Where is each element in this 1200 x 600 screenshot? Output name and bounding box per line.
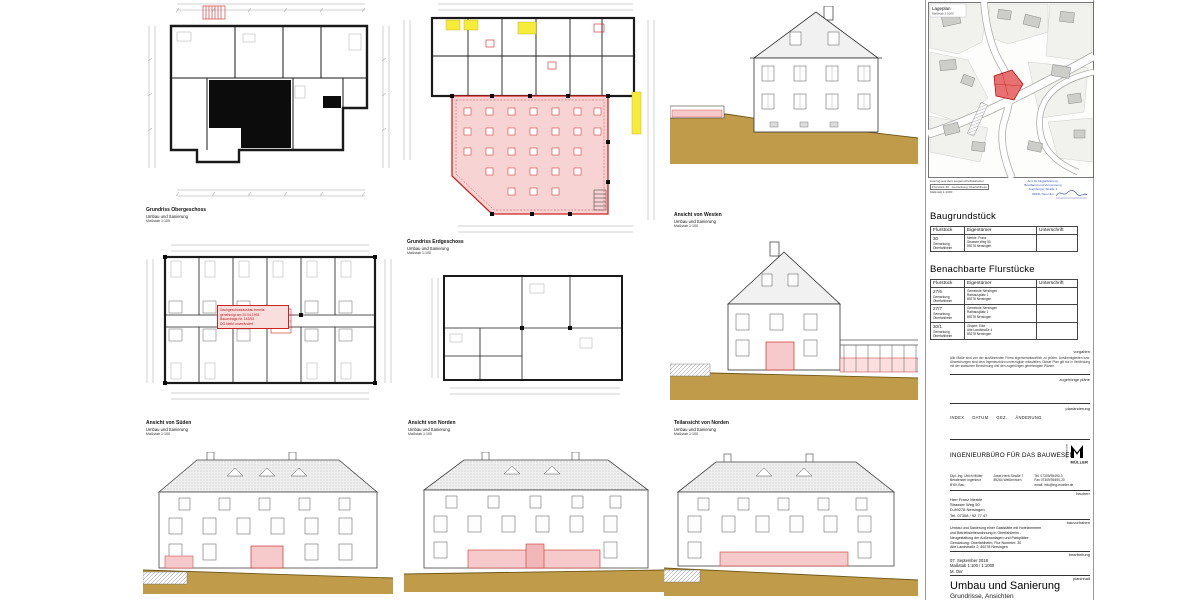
map-footnotes: Auszug aus dem Liegenschaftskataster Flu… xyxy=(930,179,1012,195)
plan-title: Umbau und Sanierung xyxy=(950,580,1060,592)
logo-text: MÜLLER xyxy=(1071,460,1089,465)
section-label-plaene: zugehörige pläne xyxy=(1059,377,1090,382)
firm-name: INGENIEURBÜRO FÜR DAS BAUWESEN xyxy=(950,452,1074,459)
annex-pink-strip xyxy=(672,110,722,117)
caption-scale: Maßstab 1:100 xyxy=(146,219,206,224)
sheet-divider-line xyxy=(925,0,926,600)
benachbarte-table: Flurstück Eigentümer Unterschrift 27/6 G… xyxy=(930,279,1078,340)
caption-title: Ansicht von Süden xyxy=(146,420,191,427)
title-block-panel: Lageplan Maßstab 1:1000 Auszug aus dem L… xyxy=(928,0,1094,600)
caption-title: Ansicht von Westen xyxy=(674,212,722,219)
caption-obergeschoss: Grundriss Obergeschoss Umbau und Sanieru… xyxy=(146,207,206,224)
chimney xyxy=(824,6,833,20)
divider xyxy=(950,374,1090,375)
divider xyxy=(950,575,1090,576)
stair-red-marking xyxy=(203,6,225,19)
caption-scale: Maßstab 1:100 xyxy=(408,432,456,437)
new-entrance-pink xyxy=(766,342,794,370)
caption-title: Grundriss Obergeschoss xyxy=(146,207,206,214)
eigentuemer-cell: Gemeinde Nersingen Rathausplatz 1 89278 … xyxy=(965,305,1037,322)
index-row: INDEX DATUM GEZ. ÄNDERUNG xyxy=(950,415,1042,420)
flurstueck-cell: 27/6 Gemarkung Oberfahlheim xyxy=(931,288,965,305)
bauvorhaben-text: Umbau und Sanierung einer Gaststätte mit… xyxy=(950,526,1090,550)
table-header-row: Flurstück Eigentümer Unterschrift xyxy=(931,227,1078,235)
elevation-sued-drawing xyxy=(143,452,393,600)
retaining-wall-hatch xyxy=(143,572,187,584)
approval-note-box: Dachgeschossausbau bereits genehmigt am … xyxy=(217,305,289,329)
index-col: ÄNDERUNG xyxy=(1015,415,1041,420)
table-row: 27/7 Gemarkung Oberfahlheim Gemeinde Ner… xyxy=(931,305,1078,322)
contact-col: Dipl.-Ing. Ulrich Müller Beratender Inge… xyxy=(950,474,982,487)
ground xyxy=(664,568,918,596)
roof xyxy=(678,462,894,492)
signature-cell xyxy=(1037,322,1078,339)
caption-scale: Maßstab 1:100 xyxy=(146,432,191,437)
benachbarte-heading: Benachbarte Flurstücke xyxy=(930,264,1035,275)
index-col: DATUM xyxy=(972,415,988,420)
elevation-teil-nord-drawing xyxy=(664,452,918,600)
ground xyxy=(670,372,918,400)
vorgaben-text: Alle Maße sind von der ausführenden Firm… xyxy=(950,356,1090,368)
flurstueck-cell: 27/7 Gemarkung Oberfahlheim xyxy=(931,305,965,322)
roof-gable xyxy=(754,12,878,58)
caption-erdgeschoss: Grundriss Erdgeschoss Umbau und Sanierun… xyxy=(407,239,464,256)
flurstueck-cell: 30 Gemarkung Oberfahlheim xyxy=(931,235,965,252)
caption-title: Ansicht von Norden xyxy=(408,420,456,427)
elevation-west-drawing xyxy=(670,6,918,166)
terrace xyxy=(840,340,918,372)
section-label-bauherr: bauherr xyxy=(1076,491,1090,496)
bearbeitung-block: 07. September 2018 Maßstab 1:100 / 1:100… xyxy=(950,558,994,574)
contact-col: Tel. 07309/95490-0 Fax 07309/95490-20 em… xyxy=(1034,474,1073,487)
map-footnote: Maßstab 1:1000 xyxy=(930,190,1012,195)
chimney xyxy=(770,242,779,256)
flurstueck-cell: 30/1 Gemarkung Oberfahlheim xyxy=(931,322,965,339)
map-footnote-boxed: Flurstück 30 · Gemarkung Oberfahlheim xyxy=(930,184,989,191)
col-unterschrift: Unterschrift xyxy=(1037,227,1078,235)
caption-title: Grundriss Erdgeschoss xyxy=(407,239,464,246)
eigentuemer-cell: Merkle, Franz Strasser Weg 50 89278 Ners… xyxy=(965,235,1037,252)
elevation-nord-drawing xyxy=(404,452,664,600)
divider xyxy=(950,403,1090,404)
index-col: INDEX xyxy=(950,415,964,420)
col-flurstueck: Flurstück xyxy=(931,227,965,235)
firm-contact: Dipl.-Ing. Ulrich Müller Beratender Inge… xyxy=(950,474,1073,487)
roof-gable xyxy=(728,252,840,304)
col-eigentuemer: Eigentümer xyxy=(965,280,1037,288)
caption-title: Teilansicht von Norden xyxy=(674,420,729,427)
retaining-wall-hatch xyxy=(670,364,710,376)
section-label-bauvorhaben: bauvorhaben xyxy=(1067,520,1090,525)
floorplan-keller-drawing xyxy=(430,268,632,398)
note-line: DG bleibt unverändert xyxy=(220,322,286,327)
index-col: GEZ. xyxy=(996,415,1007,420)
divider xyxy=(950,439,1090,440)
caption-ansicht-sueden: Ansicht von Süden Umbau und Sanierung Ma… xyxy=(146,420,191,437)
section-label-planaenderung: planänderung xyxy=(1066,406,1090,411)
contact-col: Josef-Herb-Straße 7 89264 Weißenhorn xyxy=(993,474,1023,487)
signature-cell xyxy=(1037,235,1078,252)
signature-cell xyxy=(1037,288,1078,305)
caption-scale: Maßstab 1:100 xyxy=(674,432,729,437)
baugrundstueck-table: Flurstück Eigentümer Unterschrift 30 Gem… xyxy=(930,226,1078,252)
col-flurstueck: Flurstück xyxy=(931,280,965,288)
mueller-logo-icon: INGENIEURBÜRO MÜLLER xyxy=(1064,444,1090,466)
section-label-vorgaben: vorgaben xyxy=(1073,349,1090,354)
bauherr-address: Herr Franz Merkle Strasser Weg 50 D-8927… xyxy=(950,497,987,518)
map-title: Lageplan xyxy=(932,6,951,11)
logo-vertical-text: INGENIEURBÜRO xyxy=(1066,444,1069,458)
map-scale: Maßstab 1:1000 xyxy=(932,12,954,16)
pink-strip xyxy=(165,556,193,568)
divider xyxy=(950,490,1090,491)
table-row: 30 Gemarkung Oberfahlheim Merkle, Franz … xyxy=(931,235,1078,252)
floorplan-obergeschoss-drawing xyxy=(143,0,395,205)
caption-teilansicht-norden: Teilansicht von Norden Umbau und Sanieru… xyxy=(674,420,729,437)
table-header-row: Flurstück Eigentümer Unterschrift xyxy=(931,280,1078,288)
mueller-logo: INGENIEURBÜRO MÜLLER xyxy=(1064,444,1090,471)
elevation-section-drawing xyxy=(670,222,918,404)
roof xyxy=(424,460,648,490)
signature-cell xyxy=(1037,305,1078,322)
porch-pink xyxy=(251,546,283,568)
pink-strip-wide xyxy=(720,552,848,566)
table-row: 30/1 Gemarkung Oberfahlheim Gispert, Elk… xyxy=(931,322,1078,339)
lageplan-map: Lageplan Maßstab 1:1000 xyxy=(928,2,1094,178)
baugrundstueck-heading: Baugrundstück xyxy=(930,211,996,222)
door-pink xyxy=(526,544,544,568)
col-eigentuemer: Eigentümer xyxy=(965,227,1037,235)
retaining-wall-hatch xyxy=(664,570,700,582)
floorplan-erdgeschoss-drawing xyxy=(398,0,666,237)
caption-scale: Maßstab 1:100 xyxy=(407,251,464,256)
eigentuemer-cell: Gispert, Elke Alte Landstraße 4 89278 Ne… xyxy=(965,322,1037,339)
col-unterschrift: Unterschrift xyxy=(1037,280,1078,288)
table-row: 27/6 Gemarkung Oberfahlheim Gemeinde Ner… xyxy=(931,288,1078,305)
plan-sheet: Grundriss Obergeschoss Umbau und Sanieru… xyxy=(0,0,1200,600)
section-label-bearbeitung: bearbeitung xyxy=(1069,552,1090,557)
eigentuemer-cell: Gemeinde Nersingen Rathausplatz 1 89278 … xyxy=(965,288,1037,305)
plan-subtitle: Grundrisse, Ansichten xyxy=(950,593,1014,600)
section-label-planinhalt: planinhalt xyxy=(1073,576,1090,581)
black-wall-pier xyxy=(323,96,341,108)
caption-ansicht-norden: Ansicht von Norden Umbau und Sanierung M… xyxy=(408,420,456,437)
signature-icon xyxy=(1054,187,1090,201)
